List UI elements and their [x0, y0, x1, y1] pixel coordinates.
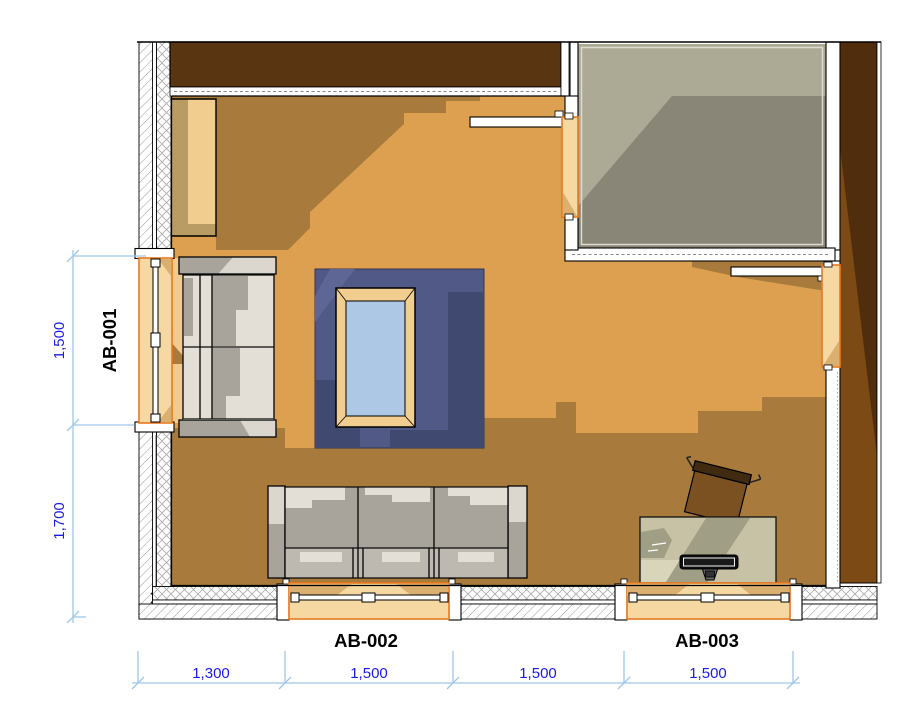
jamb-notch	[621, 579, 627, 584]
side-wall-opening	[822, 262, 840, 370]
wall-core-hatch	[153, 587, 278, 601]
window-mullion	[151, 259, 160, 267]
sofa3-back-highlight	[458, 552, 494, 562]
two-seat-sofa	[179, 257, 276, 437]
opening-label-ab-001: AB-001	[99, 309, 120, 373]
sofa2-arm-shadow	[179, 420, 250, 437]
monitor-stand-knob	[706, 571, 715, 577]
window-mullion	[362, 593, 375, 602]
window-jamb	[790, 584, 802, 620]
door-notch	[565, 214, 573, 220]
wall-core-hatch	[157, 42, 172, 249]
window-ab-001	[139, 258, 172, 423]
window-ab-003	[627, 583, 790, 619]
floor-plan-page: 1,500 1,700 1,300 1,500 1,500 1,500 AB-0…	[0, 0, 910, 722]
floor-plan-drawing: 1,500 1,700 1,300 1,500 1,500 1,500 AB-0…	[0, 0, 910, 722]
wall-insulation-hatch	[461, 604, 615, 619]
jamb-notch	[449, 579, 455, 584]
rug-shadow-patch	[390, 430, 448, 448]
wall-core-hatch	[461, 587, 615, 601]
top-wall-lining	[170, 87, 561, 96]
wall-air-gap	[153, 600, 278, 604]
opening-label-ab-002: AB-002	[334, 630, 398, 651]
dim-text-left-2: 1,700	[51, 502, 68, 540]
wall-insulation-hatch	[802, 604, 877, 619]
window-mullion	[629, 593, 637, 602]
window-jamb	[277, 584, 289, 620]
sofa3-back-highlight	[382, 552, 420, 562]
dimension-line-bottom: 1,300 1,500 1,500 1,500	[132, 651, 800, 689]
sofa3-arm-shadow	[268, 524, 285, 578]
wall-insulation-hatch	[139, 604, 277, 619]
table-glass-top	[346, 301, 405, 416]
window-jamb	[449, 584, 461, 620]
top-wall-end-cap	[561, 42, 569, 96]
window-ab-002	[289, 583, 449, 619]
jamb-notch	[790, 579, 796, 584]
sofa2-back-shadow	[184, 278, 193, 336]
window-mullion	[151, 333, 160, 347]
jamb-notch	[283, 579, 289, 584]
right-wall-edge-strip	[877, 42, 881, 583]
wall-insulation-hatch	[139, 432, 153, 619]
partition-below-door	[565, 217, 578, 250]
monitor-screen	[684, 558, 735, 566]
window-mullion	[781, 593, 789, 602]
top-wall-body	[170, 42, 561, 87]
top-wall	[170, 42, 569, 96]
partition-stub-top	[470, 117, 563, 127]
wardrobe-cabinet	[170, 99, 216, 236]
rug-shadow-patch	[448, 292, 484, 448]
wall-air-gap	[461, 600, 615, 604]
sofa3-back-highlight	[300, 552, 342, 562]
three-seat-sofa	[268, 486, 527, 578]
cabinet-front	[188, 99, 216, 224]
window-mullion	[440, 593, 448, 602]
partition-stub-right	[731, 267, 826, 276]
wall-air-gap	[802, 600, 877, 604]
wall-air-gap	[153, 42, 157, 249]
dim-text-bottom-1: 1,300	[192, 665, 230, 682]
dim-text-left-1: 1,500	[51, 322, 68, 360]
window-mullion	[291, 593, 299, 602]
door-notch	[565, 113, 573, 119]
dim-text-bottom-3: 1,500	[519, 665, 557, 682]
side-room-right-wall	[826, 42, 840, 250]
desk	[640, 517, 776, 583]
wall-core-hatch	[157, 432, 172, 600]
window-jamb	[135, 249, 174, 259]
opening-notch	[824, 365, 832, 370]
dimension-line-left: 1,500 1,700	[51, 250, 146, 623]
interior-door-opening	[562, 113, 578, 220]
coffee-table	[336, 288, 415, 427]
window-mullion	[151, 414, 160, 422]
window-mullion	[701, 593, 714, 602]
dim-text-bottom-2: 1,500	[350, 665, 388, 682]
side-room	[578, 44, 826, 248]
partition-stub-notch	[555, 111, 563, 117]
sofa3-arm-shadow	[508, 522, 527, 578]
dim-text-bottom-4: 1,500	[689, 665, 727, 682]
window-jamb	[615, 584, 627, 620]
opening-label-ab-003: AB-003	[675, 630, 739, 651]
wall-insulation-hatch	[139, 42, 153, 249]
opening-notch	[824, 262, 832, 267]
